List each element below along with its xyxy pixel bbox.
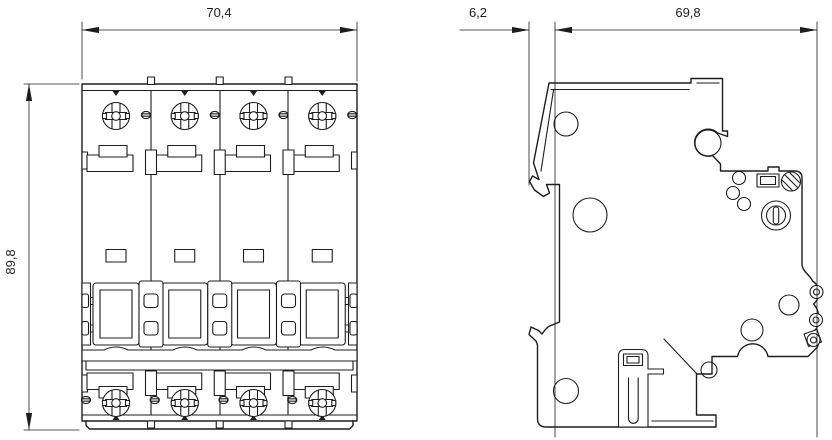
side-rivet-circles: [554, 112, 800, 404]
arrowhead: [26, 84, 32, 101]
top-terminal-screws: [103, 103, 357, 130]
arrowhead: [512, 27, 529, 33]
arrowhead: [26, 413, 32, 430]
side-profile-outline: [529, 79, 819, 428]
top-terminal-claws: [82, 146, 357, 175]
dimension-side-offset: 6,2: [460, 5, 555, 437]
side-terminal-window: [757, 174, 779, 187]
side-hatched-screw: [780, 169, 802, 194]
dimension-front-height: 89,8: [3, 84, 79, 430]
side-cage-rings: [804, 286, 823, 347]
bottom-terminal-screws: [81, 390, 335, 417]
side-terminal-screw: [762, 201, 791, 230]
front-height-label: 89,8: [3, 249, 18, 274]
side-view: [529, 79, 823, 428]
dimension-drawing: 70,4 89,8 6,2: [0, 0, 832, 440]
trip-bar: [82, 347, 357, 370]
pole-label-windows: [106, 250, 332, 263]
drawing-canvas: 70,4 89,8 6,2: [0, 0, 832, 440]
front-view: [81, 77, 357, 429]
side-depth-label: 69,8: [675, 5, 700, 20]
arrowhead: [555, 27, 572, 33]
side-offset-label: 6,2: [469, 5, 487, 20]
arrowhead: [340, 27, 357, 33]
front-width-label: 70,4: [206, 5, 231, 20]
drawing-root: 70,4 89,8 6,2: [3, 5, 823, 437]
arrowhead: [82, 27, 99, 33]
arrowhead: [800, 27, 817, 33]
dimension-front-width: 70,4: [82, 5, 357, 81]
din-rail-latch: [619, 350, 664, 428]
